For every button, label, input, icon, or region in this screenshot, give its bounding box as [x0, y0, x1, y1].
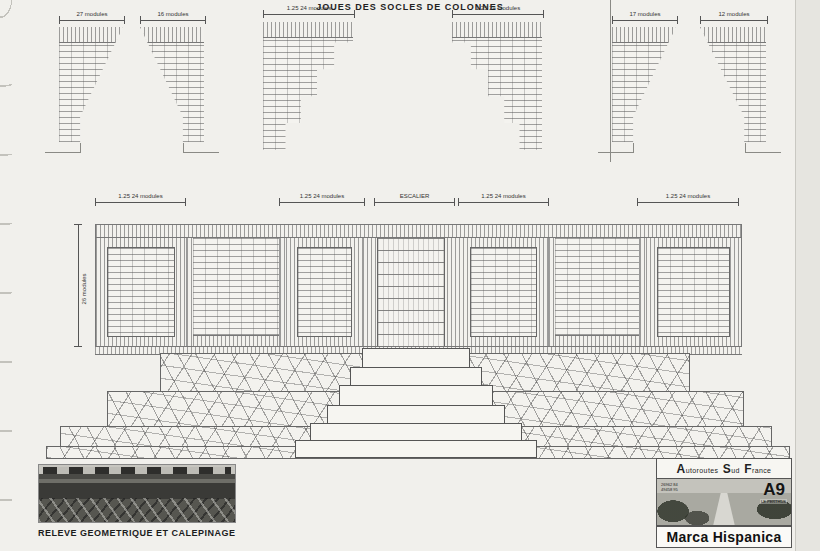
- center-bay-ladder-pattern: [377, 238, 445, 346]
- elevation-panel-framed: [646, 238, 741, 346]
- stair-step-1: [362, 348, 470, 369]
- title-block: Autoroutes Sud France 26962 84 49458 95 …: [656, 458, 792, 546]
- torn-paper-edge: [0, 0, 12, 551]
- column-side-profile-taper: [59, 27, 123, 142]
- photo-wall-detail: [43, 467, 231, 474]
- panel-inner-brick: [470, 247, 537, 337]
- panel-bottom-band: [555, 335, 639, 346]
- monument-name: Marca Hispanica: [656, 526, 792, 548]
- drawing-caption: RELEVE GEOMETRIQUE ET CALEPINAGE: [38, 528, 236, 538]
- drawing-sheet: JOUES DES SOCLES DE COLONNES 27 modules …: [0, 0, 820, 551]
- soldier-course-cap: [700, 27, 766, 43]
- stair-step-6: [295, 440, 537, 458]
- elevation-panel-plain: [193, 238, 279, 346]
- elevation-panel-framed: [96, 238, 186, 346]
- elevation-panel-framed: [459, 238, 548, 346]
- reference-numbers: 26962 84 49458 95: [661, 482, 678, 492]
- panel-inner-brick: [107, 247, 175, 337]
- soldier-course-cap: [140, 27, 204, 43]
- company-word: Sud: [723, 462, 740, 476]
- sheet-fold-line: [610, 0, 611, 162]
- road-number: A9: [763, 481, 785, 498]
- dimension-label: 12 modules: [701, 11, 767, 17]
- sheet-right-margin: [795, 0, 820, 551]
- panel-inner-brick: [297, 247, 352, 337]
- soldier-course-cap: [452, 22, 542, 38]
- company-word: France: [744, 462, 771, 476]
- dimension-shape3: 1.25 24 modules: [263, 10, 355, 18]
- reference-line: 49458 95: [661, 487, 678, 492]
- panel-inner-brick: [657, 247, 730, 337]
- dimension-label: 26 modules: [81, 273, 87, 304]
- dimension-elevation-center: ESCALIER: [374, 198, 455, 206]
- location-label: LE PERTHUS: [760, 499, 787, 504]
- center-bay-label: ESCALIER: [375, 193, 454, 199]
- dimension-label: 16 modules: [141, 11, 205, 17]
- column-side-profile-stepped: [263, 22, 353, 150]
- ground-line: [745, 152, 781, 153]
- dimension-shape1: 27 modules: [59, 16, 125, 24]
- highway-photo: 26962 84 49458 95 A9 LE PERTHUS: [656, 478, 792, 526]
- dimension-label: 1.25 24 modules: [96, 193, 185, 199]
- dimension-label: 1.25 24 modules: [453, 5, 543, 11]
- dimension-shape4: 1.25 24 modules: [452, 10, 544, 18]
- dimension-label: 1.25 24 modules: [280, 193, 364, 199]
- column-side-profile-taper: [612, 27, 676, 142]
- ground-line: [183, 152, 219, 153]
- dimension-label: 1.25 24 modules: [638, 193, 738, 199]
- dimension-shape6: 12 modules: [700, 16, 768, 24]
- dimension-label: 27 modules: [60, 11, 124, 17]
- dimension-elevation-1: 1.25 24 modules: [95, 198, 186, 206]
- column-side-profile-taper: [700, 27, 766, 142]
- ground-line: [45, 152, 81, 153]
- soldier-course-band: [96, 225, 741, 238]
- company-word: Autoroutes: [677, 462, 719, 476]
- column-side-profile-stepped: [452, 22, 542, 150]
- monument-photo: [38, 464, 236, 523]
- panel-bottom-band: [193, 335, 279, 346]
- soldier-course-cap: [59, 27, 123, 43]
- company-name: Autoroutes Sud France: [656, 458, 792, 480]
- dimension-shape5: 17 modules: [612, 16, 678, 24]
- stair-step-4: [327, 405, 505, 425]
- elevation-wall: [95, 224, 742, 347]
- dimension-label: 17 modules: [613, 11, 677, 17]
- soldier-course-cap: [263, 22, 353, 38]
- stair-step-2: [350, 367, 482, 387]
- dimension-elevation-3: 1.25 24 modules: [458, 198, 549, 206]
- road-shape: [713, 493, 734, 525]
- dimension-label: 1.25 24 modules: [264, 5, 354, 11]
- column-side-profile-taper: [140, 27, 204, 142]
- stair-step-3: [339, 385, 493, 407]
- elevation-center-bay: [363, 238, 459, 346]
- dimension-label: 1.25 24 modules: [459, 193, 548, 199]
- dimension-elevation-height: 26 modules: [74, 224, 82, 347]
- dimension-elevation-2: 1.25 24 modules: [279, 198, 365, 206]
- elevation-panel-framed: [286, 238, 363, 346]
- ground-line: [598, 152, 634, 153]
- soldier-course-cap: [612, 27, 676, 43]
- dimension-elevation-4: 1.25 24 modules: [637, 198, 739, 206]
- elevation-panel-plain: [555, 238, 639, 346]
- dimension-shape2: 16 modules: [140, 16, 206, 24]
- photo-stone-base: [39, 498, 235, 522]
